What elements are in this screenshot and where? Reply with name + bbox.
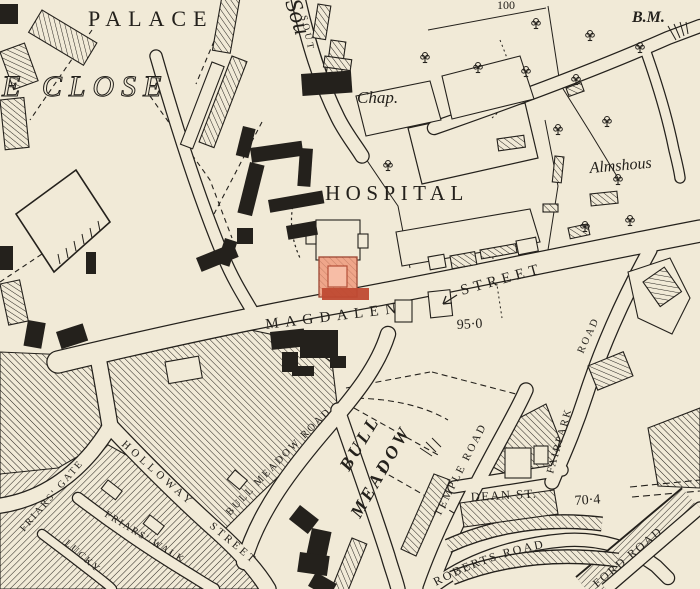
- label-palace: PALACE: [88, 6, 214, 31]
- label-benchmark: B.M.: [631, 9, 665, 26]
- map-viewport[interactable]: PALACE E CLOSE Sou SOUT Chap. HOSPITAL B…: [0, 0, 700, 589]
- label-chapel: Chap.: [357, 88, 398, 107]
- label-the-close: E CLOSE: [1, 70, 169, 103]
- label-hospital: HOSPITAL: [325, 181, 469, 205]
- label-spot-95: 95·0: [456, 317, 482, 333]
- label-contour-100: 100: [497, 0, 515, 12]
- label-spot-70: 70·4: [574, 492, 601, 509]
- map-canvas[interactable]: PALACE E CLOSE Sou SOUT Chap. HOSPITAL B…: [0, 0, 700, 589]
